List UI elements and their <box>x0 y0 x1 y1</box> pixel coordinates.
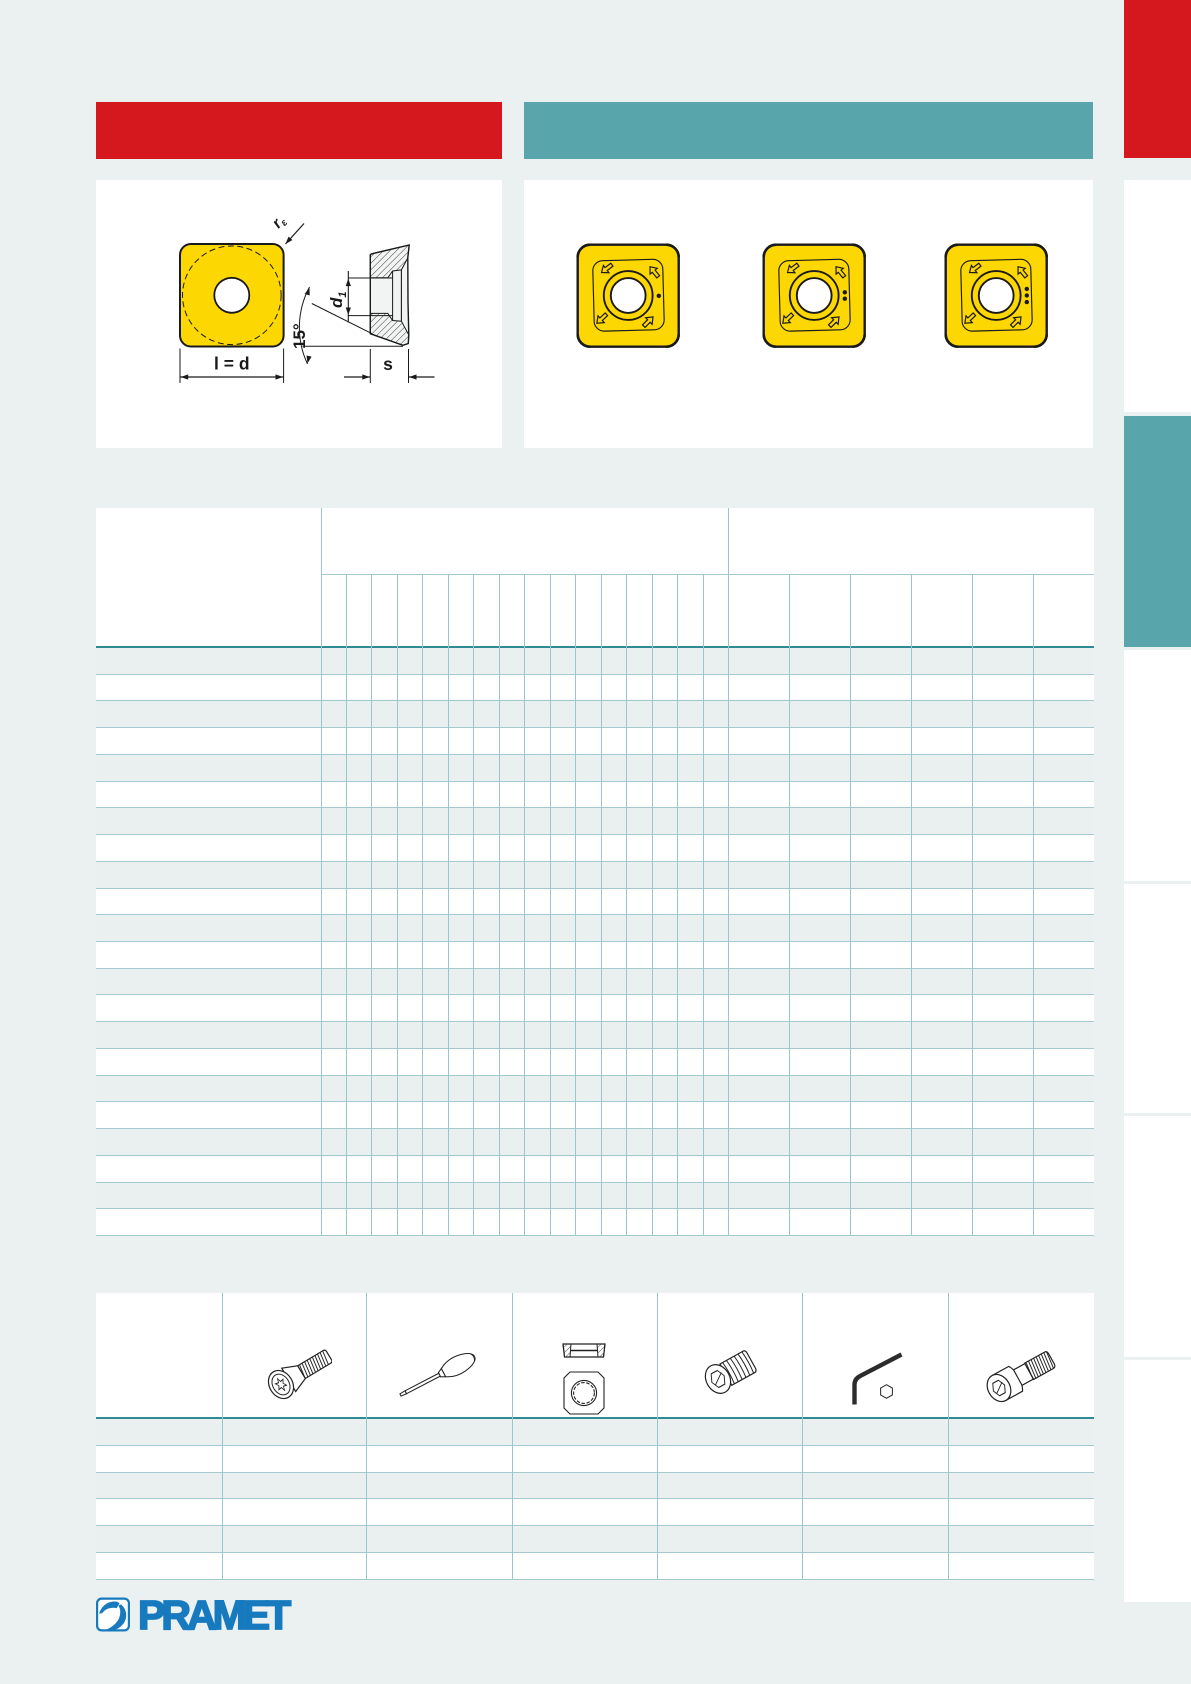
svg-text:d1: d1 <box>327 291 349 308</box>
svg-text:15°: 15° <box>290 323 309 349</box>
svg-text:rε: rε <box>269 212 291 233</box>
svg-text:s: s <box>383 354 393 374</box>
svg-text:l = d: l = d <box>214 354 250 374</box>
